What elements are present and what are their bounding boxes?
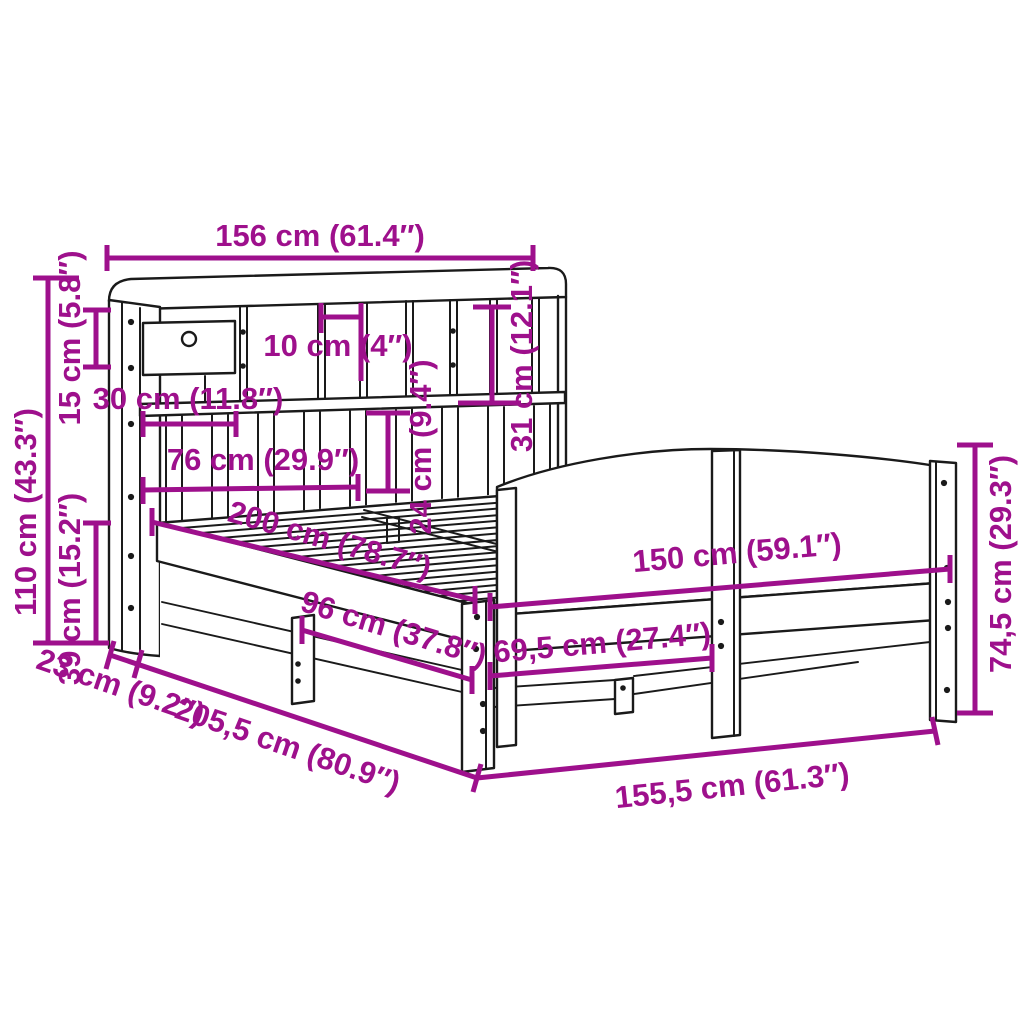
label-cubby-height: 31 cm (12.1″) (504, 260, 539, 452)
label-total-height: 110 cm (43.3″) (8, 408, 43, 616)
label-lower-shelf-height: 24 cm (9.4″) (403, 359, 438, 534)
drawer-front (143, 321, 235, 375)
label-headboard-width: 156 cm (61.4″) (215, 218, 425, 253)
dim-top-section-height (83, 310, 111, 367)
drawer-knob (182, 332, 196, 346)
bed-dimension-diagram: 156 cm (61.4″) 110 cm (43.3″) 15 cm (5.8… (0, 0, 1024, 1024)
diagram-canvas: 156 cm (61.4″) 110 cm (43.3″) 15 cm (5.8… (0, 0, 1024, 1024)
footboard-back-post (930, 461, 956, 722)
label-lower-shelf-width: 76 cm (29.9″) (167, 442, 359, 477)
dim-base-height (83, 523, 111, 643)
label-cubby-width: 10 cm (4″) (263, 328, 412, 363)
footboard-front-post (497, 488, 516, 747)
footboard-centre-post (712, 450, 740, 738)
label-drawer-width: 30 cm (11.8″) (93, 381, 284, 416)
label-footboard-height: 74,5 cm (29.3″) (983, 455, 1018, 673)
label-top-section-height: 15 cm (5.8″) (52, 250, 87, 425)
footboard-centre-leg (615, 678, 633, 714)
